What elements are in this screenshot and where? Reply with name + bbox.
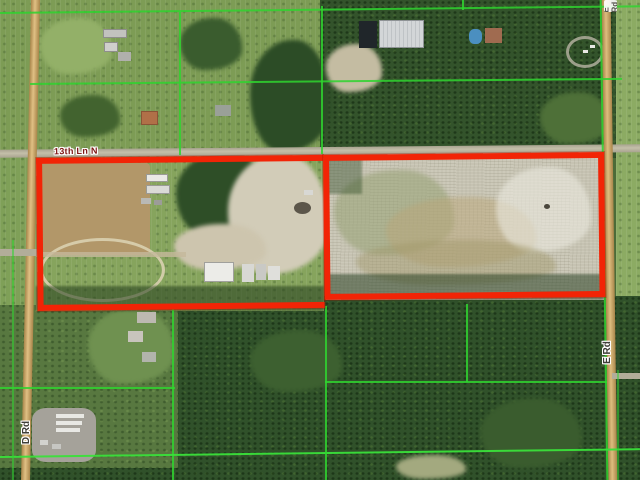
warehouse-roof bbox=[379, 20, 424, 48]
parcel-line bbox=[325, 381, 607, 383]
parcel-line bbox=[179, 12, 181, 155]
tree-cluster bbox=[180, 18, 242, 70]
road-label-text: E Rd bbox=[602, 341, 613, 364]
barn-roof bbox=[103, 29, 127, 38]
sand-clearing bbox=[326, 44, 382, 92]
trailer-row bbox=[56, 428, 80, 432]
house-roof bbox=[104, 42, 118, 52]
house-roof bbox=[485, 28, 502, 43]
vehicle bbox=[583, 50, 588, 53]
house-roof bbox=[141, 111, 158, 125]
house-roof bbox=[118, 52, 131, 61]
sand-patch bbox=[396, 455, 466, 479]
house-roof bbox=[142, 352, 156, 362]
vehicle bbox=[52, 444, 61, 449]
highlighted-parcel-east[interactable] bbox=[323, 152, 606, 300]
tree-cluster bbox=[480, 398, 582, 468]
road-label-text: E Rd bbox=[604, 0, 617, 12]
swimming-pool bbox=[469, 29, 482, 44]
tree-cluster bbox=[540, 92, 610, 144]
aerial-map[interactable]: 13th Ln N D Rd E Rd E Rd bbox=[0, 0, 640, 480]
parcel-line bbox=[462, 0, 464, 10]
light-field-patch bbox=[40, 18, 112, 74]
tree-cluster bbox=[250, 40, 330, 152]
trailer-row bbox=[56, 421, 82, 425]
house-roof bbox=[215, 105, 231, 116]
dark-building bbox=[359, 21, 377, 48]
trailer-row bbox=[56, 414, 84, 418]
vehicle bbox=[590, 45, 595, 48]
road-label-d-rd: D Rd bbox=[14, 404, 40, 460]
road-label-13th-ln-n: 13th Ln N bbox=[54, 146, 98, 157]
vehicle bbox=[40, 440, 48, 445]
parcel-line bbox=[325, 306, 327, 480]
parcel-line bbox=[321, 6, 323, 154]
house-roof bbox=[128, 331, 143, 342]
road-label-e-rd-top-partial: E Rd bbox=[604, 0, 617, 12]
highlighted-parcel-west[interactable] bbox=[36, 155, 325, 311]
road-label-text: D Rd bbox=[22, 420, 33, 443]
parcel-line bbox=[0, 387, 175, 389]
highlighted-parcels-group bbox=[30, 146, 612, 322]
tree-cluster bbox=[60, 95, 120, 137]
parcel-line bbox=[617, 370, 619, 480]
road-label-e-rd: E Rd bbox=[594, 328, 620, 376]
